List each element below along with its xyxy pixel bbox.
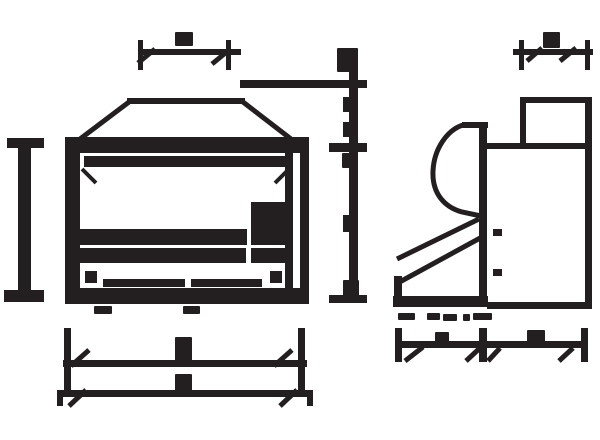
dimension-label-blob — [175, 32, 193, 46]
caption-blob — [183, 306, 200, 314]
dimension-mid-tick — [479, 328, 487, 362]
dimension-label-blob — [543, 32, 560, 48]
caption-blob — [473, 313, 492, 320]
hood-top-edge — [127, 98, 245, 104]
bolt-mark-right — [270, 271, 282, 283]
vent-slot-right — [191, 279, 262, 287]
flue-box — [520, 97, 592, 147]
scale-bar — [349, 60, 358, 300]
front-top-width-dimension — [138, 32, 241, 70]
door-frame-top-line — [84, 156, 287, 167]
body-right-edge — [585, 97, 592, 309]
front-height-dimension-left — [4, 138, 44, 302]
front-top-band — [65, 137, 303, 153]
stove-technical-drawing — [0, 0, 600, 440]
dimension-line — [57, 390, 313, 397]
dimension-label-blob — [175, 337, 192, 361]
dimension-slash — [405, 347, 423, 361]
front-hood — [80, 98, 291, 139]
body-top-edge — [484, 143, 592, 149]
scale-label-blob — [342, 153, 358, 168]
dimension-line — [63, 360, 307, 367]
caption-blob — [443, 314, 457, 321]
scale-label-blob-top — [337, 48, 358, 72]
dimension-end-tick-left — [138, 40, 143, 70]
dimension-end-tick-left — [395, 328, 402, 362]
scale-foot-cap — [329, 295, 367, 303]
front-left-edge — [65, 137, 80, 304]
scale-cross-tick — [329, 143, 367, 152]
hood-left-slope — [80, 102, 129, 139]
side-view — [393, 97, 592, 321]
dimension-end-tick-left — [519, 40, 524, 70]
scale-nub — [343, 97, 349, 112]
lower-panel-band-left — [80, 248, 246, 263]
front-glass-outer-curve — [433, 125, 481, 216]
dimension-slash — [559, 348, 573, 361]
caption-blob — [427, 313, 440, 320]
technical-drawing-page — [0, 0, 600, 440]
dimension-line — [513, 49, 593, 55]
dimension-end-tick-right — [585, 40, 590, 70]
height-dim-bar — [18, 146, 31, 293]
hood-right-slope — [243, 102, 291, 139]
lower-panel-band-right — [251, 248, 286, 263]
curved-front-profile — [393, 122, 488, 307]
dimension-label-blob — [527, 330, 545, 344]
curve-top-stub — [462, 122, 488, 128]
front-bottom-band — [65, 288, 303, 304]
side-top-depth-dimension — [513, 32, 593, 70]
front-right-outer-edge — [300, 137, 309, 304]
dimension-end-stub-left — [57, 390, 63, 406]
height-dim-bottom-cap — [4, 290, 44, 302]
door-bottom-rail — [80, 229, 247, 245]
vent-slot-left — [103, 279, 185, 287]
scale-label-blob — [343, 280, 359, 297]
body-bottom-edge — [487, 302, 592, 309]
flue-left-edge — [520, 97, 526, 147]
dimension-label-blob — [175, 374, 192, 391]
dimension-slash — [466, 348, 480, 361]
caption-blob — [463, 314, 470, 321]
base-plate — [393, 296, 488, 307]
extension-line — [240, 80, 367, 88]
scale-nub — [343, 122, 349, 137]
dimension-end-tick-right — [581, 328, 588, 362]
dimension-line — [395, 341, 588, 348]
caption-blob — [398, 313, 415, 320]
dimension-slash — [488, 348, 500, 361]
front-bottom-width-dimension-2 — [57, 374, 313, 406]
side-bottom-depth-dimension — [395, 328, 588, 362]
dimension-end-stub-right — [307, 390, 313, 406]
flue-top-edge — [520, 97, 592, 103]
scale-nub — [343, 215, 351, 232]
lower-slope-line-lower — [396, 237, 482, 284]
hinge-tick-upper — [493, 229, 502, 236]
front-view — [65, 98, 309, 314]
door-handle-block — [251, 202, 287, 245]
front-toe-edge — [394, 276, 402, 298]
dimension-label-blob — [435, 332, 449, 343]
caption-blob — [94, 306, 112, 314]
lower-slope-line-upper — [397, 219, 479, 259]
door-corner-bevel-left — [82, 169, 96, 183]
hinge-tick-lower — [493, 269, 502, 276]
bolt-mark-left — [85, 271, 97, 283]
